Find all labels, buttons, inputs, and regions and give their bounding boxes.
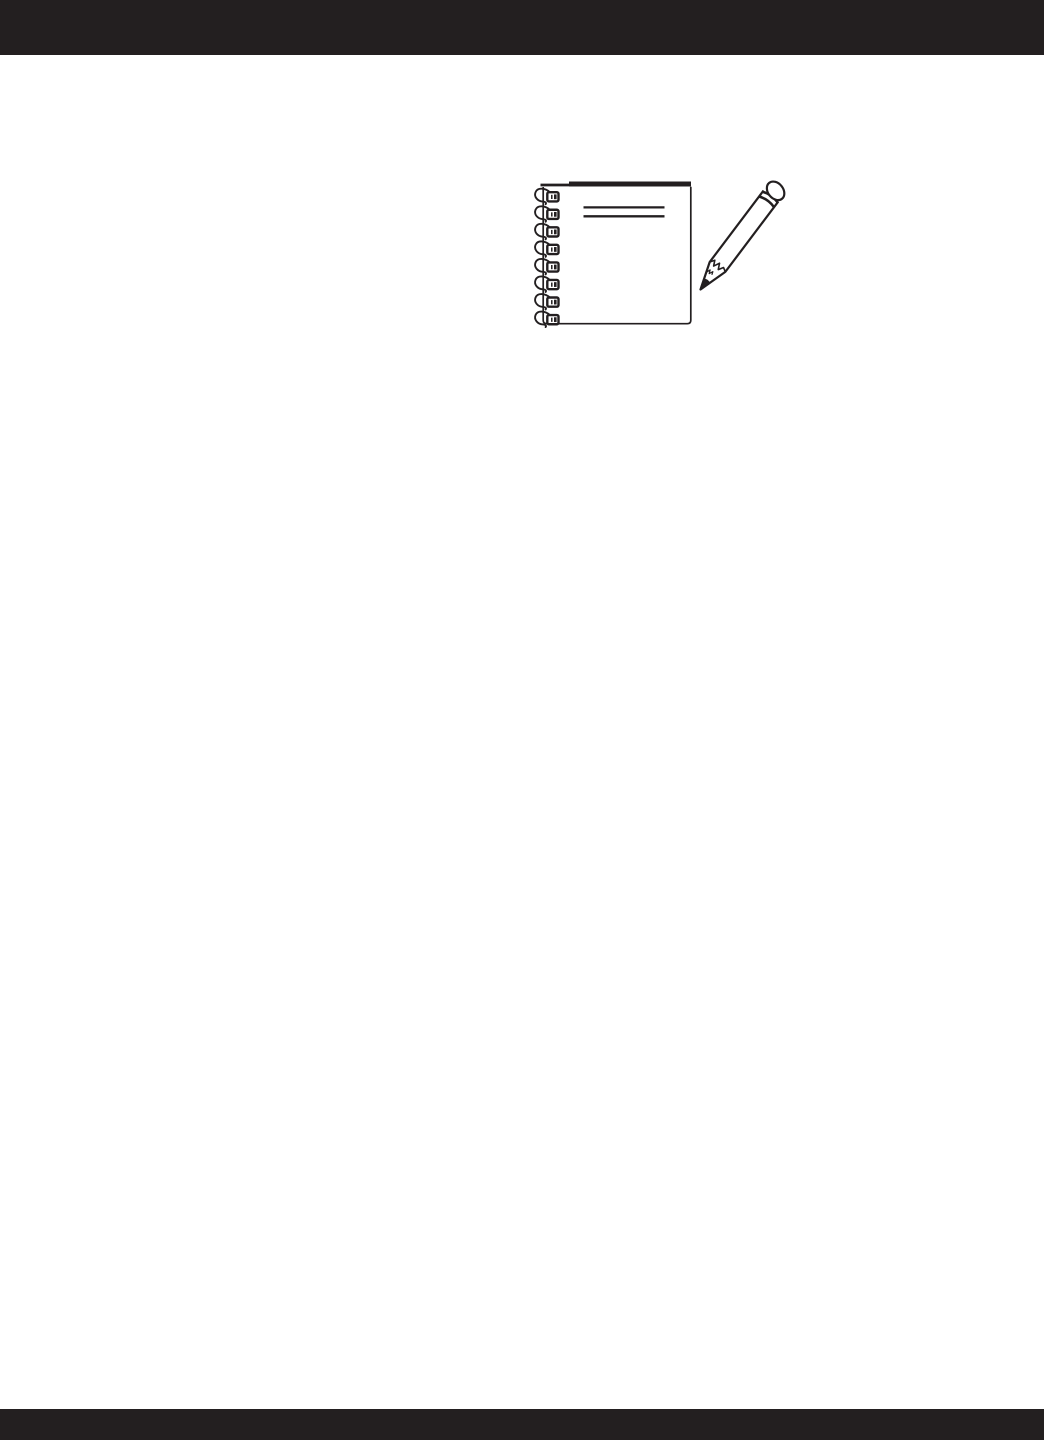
- header-bar: [0, 0, 1044, 55]
- notebook-illustration: [535, 184, 691, 327]
- spiral-ring: [535, 276, 558, 291]
- notebook-pencil-svg: [520, 160, 810, 340]
- spiral-ring: [535, 189, 558, 204]
- notebook-pencil-illustration: [520, 160, 810, 340]
- spiral-ring: [535, 241, 558, 256]
- spiral-ring: [535, 206, 558, 221]
- pencil-illustration: [692, 176, 791, 297]
- spiral-ring: [535, 259, 558, 274]
- spiral-ring: [535, 224, 558, 239]
- footer-bar: [0, 1409, 1044, 1440]
- spiral-ring: [535, 294, 558, 309]
- spiral-ring: [535, 312, 558, 327]
